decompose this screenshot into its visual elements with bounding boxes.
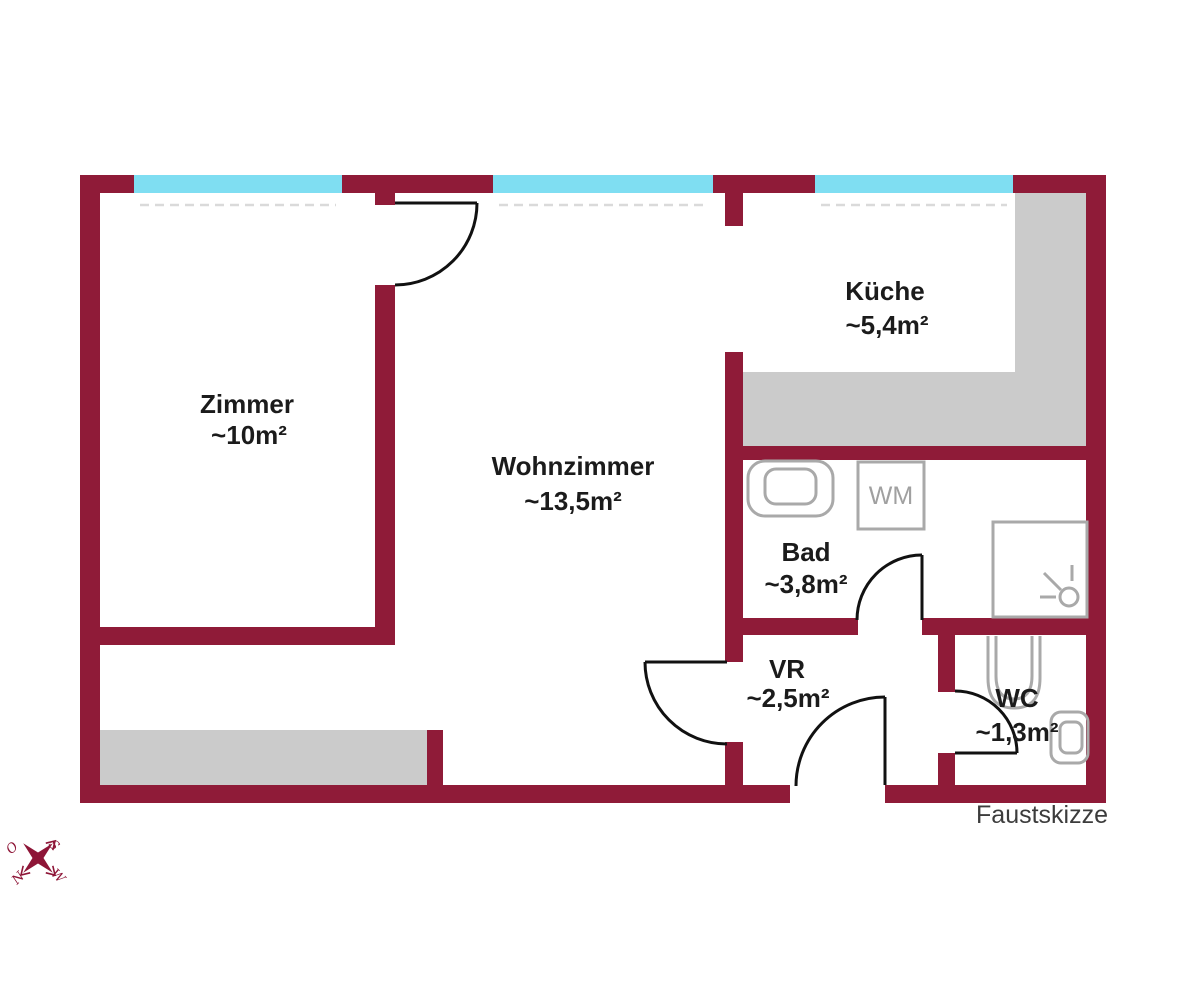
floorplan-canvas: WM Zimmer ~10m² Wohnzimmer ~13,5m: [0, 0, 1200, 1000]
room-area-zimmer: ~10m²: [211, 420, 287, 450]
wc-sink-basin-icon: [1060, 722, 1082, 753]
door-vr-arc: [645, 662, 727, 744]
room-labels: Zimmer ~10m² Wohnzimmer ~13,5m² Küche ~5…: [200, 276, 1059, 747]
door-bad-arc: [857, 555, 922, 620]
wall-vr-wc-top: [938, 635, 955, 692]
wall-bad-bottom-right: [922, 618, 1106, 635]
window-wohnzimmer: [493, 175, 713, 193]
room-area-kueche: ~5,4m²: [845, 310, 928, 340]
windows: [134, 175, 1013, 205]
room-area-vr: ~2,5m²: [746, 683, 829, 713]
wall-left: [80, 175, 100, 803]
wall-right: [1086, 175, 1106, 803]
room-label-vr: VR: [769, 654, 805, 684]
window-kueche: [815, 175, 1013, 193]
window-zimmer: [134, 175, 342, 193]
compass-letter-north: N: [8, 869, 28, 889]
wall-vr-wc-bottom: [938, 753, 955, 785]
wall-kueche-bad: [743, 446, 1106, 460]
wall-zimmer-stub: [375, 193, 395, 205]
wall-core-mid: [725, 352, 743, 662]
kitchen-counter-bottom: [743, 372, 1086, 446]
wall-bottom-left-of-entry: [80, 785, 790, 803]
wall-zimmer-bottom: [100, 627, 395, 645]
shower-arm-diagonal: [1044, 573, 1061, 590]
wardrobe-strip: [100, 730, 427, 785]
floorplan: WM Zimmer ~10m² Wohnzimmer ~13,5m: [0, 0, 1200, 1000]
room-label-wohnzimmer: Wohnzimmer: [492, 451, 655, 481]
wall-bad-bottom-left: [727, 618, 858, 635]
bad-sink-basin-icon: [765, 469, 816, 504]
door-zimmer-arc: [395, 203, 477, 285]
room-area-bad: ~3,8m²: [764, 569, 847, 599]
door-vr-wohnzimmer: [645, 662, 727, 744]
room-label-bad: Bad: [781, 537, 830, 567]
shower-icon: [993, 522, 1087, 617]
door-zimmer: [395, 203, 477, 285]
compass-rose: O S N W: [3, 837, 68, 888]
wall-core-top-stub: [725, 193, 743, 226]
room-label-zimmer: Zimmer: [200, 389, 294, 419]
room-label-wc: WC: [995, 683, 1039, 713]
room-label-kueche: Küche: [845, 276, 924, 306]
room-area-wc: ~1,3m²: [975, 717, 1058, 747]
wall-wardrobe-stub: [427, 730, 443, 786]
plan-type-label: Faustskizze: [976, 801, 1108, 829]
washing-machine-label: WM: [869, 482, 913, 510]
wall-zimmer-main: [375, 285, 395, 645]
compass-letter-east: O: [3, 839, 21, 857]
shower-drain: [1060, 588, 1078, 606]
door-bad: [857, 555, 922, 620]
room-area-wohnzimmer: ~13,5m²: [524, 486, 622, 516]
wall-core-bottom-stub: [725, 742, 743, 785]
